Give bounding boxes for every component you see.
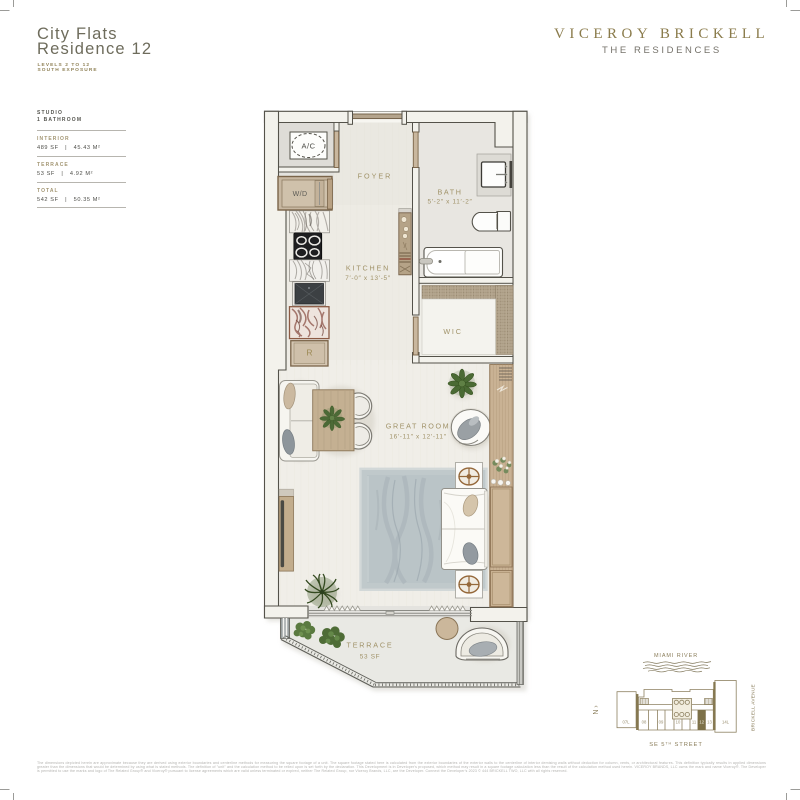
svg-text:07L: 07L bbox=[623, 720, 631, 725]
svg-text:FOYER: FOYER bbox=[358, 172, 393, 181]
svg-text:BATH: BATH bbox=[437, 188, 462, 197]
svg-text:09: 09 bbox=[659, 720, 664, 725]
svg-text:5′-2″ x 11′-2″: 5′-2″ x 11′-2″ bbox=[427, 199, 472, 206]
svg-text:16′-11″ x 12′-11″: 16′-11″ x 12′-11″ bbox=[389, 434, 446, 441]
svg-text:TERRACE: TERRACE bbox=[347, 641, 394, 650]
svg-text:53 SF: 53 SF bbox=[360, 654, 381, 661]
svg-text:A/C: A/C bbox=[301, 142, 315, 151]
svg-text:KITCHEN: KITCHEN bbox=[346, 264, 390, 273]
svg-text:BRICKELL AVENUE: BRICKELL AVENUE bbox=[751, 684, 756, 731]
svg-text:14L: 14L bbox=[722, 720, 730, 725]
svg-text:W/D: W/D bbox=[293, 191, 308, 198]
svg-text:N ›: N › bbox=[593, 705, 600, 715]
svg-text:GREAT ROOM: GREAT ROOM bbox=[386, 422, 450, 431]
svg-text:WIC: WIC bbox=[443, 327, 462, 336]
svg-text:11: 11 bbox=[692, 720, 697, 725]
svg-text:10: 10 bbox=[676, 720, 681, 725]
svg-text:7′-0″ x 13′-5″: 7′-0″ x 13′-5″ bbox=[345, 275, 391, 282]
svg-text:12: 12 bbox=[699, 720, 704, 725]
svg-text:08: 08 bbox=[642, 720, 647, 725]
svg-text:MIAMI RIVER: MIAMI RIVER bbox=[654, 653, 698, 659]
svg-text:R: R bbox=[306, 348, 312, 358]
svg-text:SE 5TH STREET: SE 5TH STREET bbox=[649, 741, 703, 748]
svg-text:13: 13 bbox=[707, 720, 712, 725]
